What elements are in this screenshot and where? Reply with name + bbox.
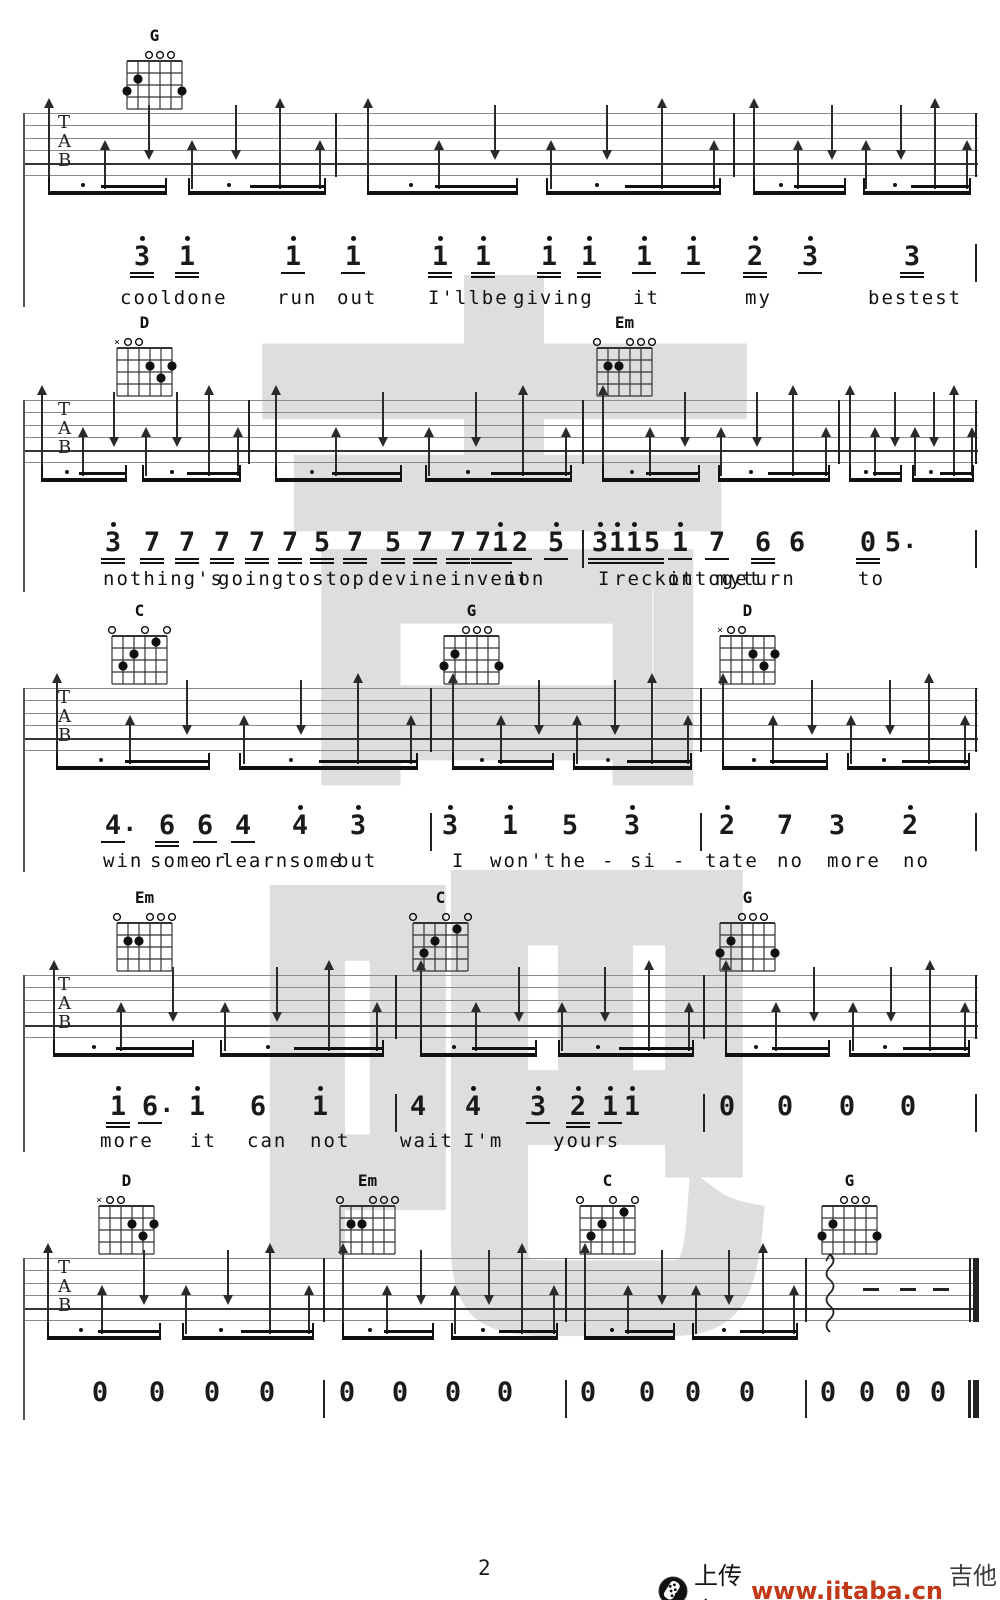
arrowhead-icon <box>296 725 306 735</box>
note-number: 6 <box>159 810 175 841</box>
note-number: 7 <box>450 527 466 558</box>
lyric-syllable: but <box>337 850 377 872</box>
melody-note: 0 <box>635 1372 659 1406</box>
beam-bar-partial <box>772 1047 829 1050</box>
melody-note: 0 <box>200 1372 224 1406</box>
svg-text:×: × <box>96 1195 102 1206</box>
strum-up-arrow-icon <box>269 1246 271 1334</box>
arrowhead-icon <box>848 1002 858 1012</box>
staff-line <box>23 175 978 176</box>
beam-bar-partial <box>770 760 828 763</box>
strum-up-arrow-icon <box>367 101 369 189</box>
beam-bar <box>53 1053 194 1057</box>
duration-underline <box>278 562 302 564</box>
duration-underline <box>130 276 154 278</box>
beam-bar-partial <box>627 760 692 763</box>
note-number: 0 <box>445 1377 461 1408</box>
note-number: 6 <box>250 1091 266 1122</box>
strum-up-arrow-icon <box>762 1246 764 1334</box>
rest-dash <box>900 1288 916 1291</box>
strum-up-arrow-icon <box>335 430 337 476</box>
melody-note: 1 <box>620 1086 644 1120</box>
melody-note: 6 <box>193 805 217 843</box>
arrowhead-icon <box>610 725 620 735</box>
melody-note: 1 <box>577 236 601 278</box>
svg-text:C: C <box>603 1174 613 1190</box>
augmentation-dot: · <box>123 817 137 841</box>
arrowhead-icon <box>514 1012 524 1022</box>
duration-underline <box>310 562 334 564</box>
melody-note: 6 <box>751 522 775 564</box>
melody-note: 1 <box>632 236 656 274</box>
duration-underline <box>310 558 334 560</box>
tab-letter: A <box>58 1278 71 1296</box>
system-left-barline <box>23 1258 25 1420</box>
strum-up-arrow-icon <box>687 718 689 764</box>
beam-bar <box>849 478 902 482</box>
strum-down-arrow-icon <box>661 1250 663 1302</box>
beam-dot <box>779 183 783 187</box>
note-number: 2 <box>902 810 918 841</box>
staff-line <box>23 125 978 126</box>
arrowhead-icon <box>546 140 556 150</box>
strum-up-arrow-icon <box>772 718 774 764</box>
beam-dot <box>610 1328 614 1332</box>
note-number: 5 <box>385 527 401 558</box>
melody-note: 2 <box>743 236 767 278</box>
strum-up-arrow-icon <box>953 388 955 476</box>
note-number: 3 <box>904 241 920 272</box>
note-number: 3 <box>829 810 845 841</box>
strum-up-arrow-icon <box>550 143 552 189</box>
beam-dot <box>929 470 933 474</box>
melody-note: 7 <box>773 805 797 839</box>
note-number: 4 <box>235 810 251 841</box>
strum-down-arrow-icon <box>382 392 384 444</box>
note-number: 1 <box>685 241 701 272</box>
arrowhead-icon <box>100 140 110 150</box>
beam-bar-partial <box>472 1047 536 1050</box>
melody-note: 0 <box>855 1372 879 1406</box>
measure-barline <box>395 975 397 1039</box>
strum-down-arrow-icon <box>813 967 815 1019</box>
strum-up-arrow-icon <box>243 718 245 764</box>
beam-dot <box>170 470 174 474</box>
beam-bar <box>912 478 974 482</box>
arrowhead-icon <box>484 1295 494 1305</box>
note-number: 0 <box>860 527 876 558</box>
note-number: 2 <box>512 527 528 558</box>
duration-underline <box>175 562 199 564</box>
beam-bar <box>47 1336 161 1340</box>
lyric-syllable: I'm <box>463 1130 503 1152</box>
beam-bar-partial <box>384 1330 435 1333</box>
strum-up-arrow-icon <box>775 1005 777 1051</box>
arrowhead-icon <box>168 1012 178 1022</box>
strum-down-arrow-icon <box>889 680 891 732</box>
arrowhead-icon <box>139 1295 149 1305</box>
lyric-syllable: some <box>150 850 204 872</box>
strum-down-arrow-icon <box>894 392 896 444</box>
arrowhead-icon <box>644 960 654 970</box>
beam-bar-partial <box>491 472 572 475</box>
beam-bar <box>420 1053 537 1057</box>
duration-underline <box>471 276 495 278</box>
strum-up-arrow-icon <box>454 1288 456 1334</box>
chord-diagram-d: D× <box>712 604 784 692</box>
arrowhead-icon <box>557 1002 567 1012</box>
arrowhead-icon <box>768 715 778 725</box>
beam-bar-partial <box>187 472 241 475</box>
note-number: 0 <box>839 1091 855 1122</box>
arrowhead-icon <box>97 1285 107 1295</box>
melody-note: 1 <box>185 1086 209 1120</box>
note-number: 7 <box>179 527 195 558</box>
melody-barline <box>430 813 432 851</box>
note-number: 0 <box>685 1377 701 1408</box>
svg-text:C: C <box>135 604 145 620</box>
arrowhead-icon <box>602 150 612 160</box>
duration-underline <box>381 558 405 560</box>
beam-bar <box>722 766 828 770</box>
arrowhead-icon <box>561 427 571 437</box>
chord-diagram-c: C <box>572 1174 644 1262</box>
tab-letter: B <box>58 1297 71 1315</box>
duration-underline <box>343 558 367 560</box>
tab-letter: T <box>58 1259 70 1277</box>
lyric-syllable: it <box>633 287 660 309</box>
chord-diagram-g: G <box>712 891 784 979</box>
arrowhead-icon <box>793 140 803 150</box>
melody-note: 4 <box>406 1086 430 1120</box>
note-number: 4 <box>105 810 121 841</box>
beam-dot <box>289 758 293 762</box>
strum-up-arrow-icon <box>386 1288 388 1334</box>
note-number: 4 <box>292 810 308 841</box>
duration-underline <box>130 272 154 274</box>
strum-up-arrow-icon <box>627 1288 629 1334</box>
arrowhead-icon <box>265 1243 275 1253</box>
melody-note: 0 <box>493 1372 517 1406</box>
site-name: 吉他吧 <box>949 1556 1000 1600</box>
duration-underline <box>705 558 729 560</box>
arrowhead-icon <box>204 385 214 395</box>
tab-letter: A <box>58 420 71 438</box>
beam-bar-partial <box>902 760 969 763</box>
duration-underline <box>413 558 437 560</box>
melody-note: 5 <box>544 522 568 560</box>
melody-note: 1 <box>668 522 692 560</box>
melody-note: 0 <box>926 1372 950 1406</box>
note-number: 1 <box>672 527 688 558</box>
beam-bar <box>753 191 846 195</box>
chord-diagram-em: Em <box>589 316 661 404</box>
upload-text: 上传自 <box>694 1556 745 1600</box>
measure-barline <box>430 688 432 752</box>
note-number: 0 <box>930 1377 946 1408</box>
staff-line <box>23 163 978 165</box>
arrowhead-icon <box>231 150 241 160</box>
melody-note: 0 <box>145 1372 169 1406</box>
arrowhead-icon <box>406 715 416 725</box>
note-number: 1 <box>179 241 195 272</box>
lyric-syllable: my <box>716 568 743 590</box>
note-number: 3 <box>134 241 150 272</box>
arrowhead-icon <box>929 437 939 447</box>
note-number: 1 <box>312 1091 328 1122</box>
beam-bar-partial <box>125 760 210 763</box>
strum-down-arrow-icon <box>488 1250 490 1302</box>
melody-note: 4 <box>231 805 255 843</box>
strum-down-arrow-icon <box>276 967 278 1019</box>
strum-up-arrow-icon <box>41 388 43 476</box>
melody-note: 0 <box>856 522 880 564</box>
note-number: 5 <box>885 527 901 558</box>
melody-barline <box>975 530 977 568</box>
chord-diagram-em: Em <box>109 891 181 979</box>
measure-barline <box>733 113 735 177</box>
beam-dot <box>630 470 634 474</box>
beam-bar <box>847 766 969 770</box>
duration-underline <box>245 562 269 564</box>
strum-down-arrow-icon <box>933 392 935 444</box>
beam-bar <box>188 191 325 195</box>
lyric-syllable: turn <box>742 568 796 590</box>
note-number: 7 <box>144 527 160 558</box>
staff-line <box>23 1012 978 1013</box>
melody-note: 0 <box>255 1372 279 1406</box>
melody-note: 0 <box>441 1372 465 1406</box>
melody-note: 3 <box>101 522 125 564</box>
chord-diagram-em: Em <box>332 1174 404 1262</box>
lyric-syllable: not <box>310 1130 350 1152</box>
beam-dot <box>893 183 897 187</box>
note-number: 1 <box>602 1091 618 1122</box>
lyric-syllable: learnsome <box>222 850 343 872</box>
arrowhead-icon <box>967 427 977 437</box>
melody-note: 0 <box>715 1086 739 1120</box>
beam-bar <box>849 1053 970 1057</box>
melody-note: 1 <box>681 236 705 274</box>
duration-underline <box>428 276 452 278</box>
measure-barline <box>700 688 702 752</box>
beam-bar-partial <box>241 1330 314 1333</box>
beam-bar <box>425 478 572 482</box>
strum-down-arrow-icon <box>494 105 496 157</box>
arrowhead-icon <box>691 1285 701 1295</box>
duration-underline <box>101 562 125 564</box>
melody-note: 3 <box>620 805 644 839</box>
staff-line <box>23 700 978 701</box>
note-number: 0 <box>497 1377 513 1408</box>
melody-note: 2 <box>566 1086 590 1128</box>
duration-underline <box>640 562 664 564</box>
arrowhead-icon <box>331 427 341 437</box>
arrowhead-icon <box>870 427 880 437</box>
strum-up-arrow-icon <box>328 963 330 1051</box>
strum-up-arrow-icon <box>713 143 715 189</box>
system-left-barline <box>23 400 25 592</box>
arrowhead-icon <box>752 437 762 447</box>
duration-underline <box>577 272 601 274</box>
arrowhead-icon <box>600 1012 610 1022</box>
strum-up-arrow-icon <box>475 1005 477 1051</box>
chord-diagram-g: G <box>436 604 508 692</box>
note-number: 6 <box>789 527 805 558</box>
note-number: 1 <box>636 241 652 272</box>
duration-underline <box>446 558 470 560</box>
strum-up-arrow-icon <box>275 388 277 476</box>
duration-underline <box>210 562 234 564</box>
arrowhead-icon <box>910 427 920 437</box>
strum-down-arrow-icon <box>420 1250 422 1302</box>
svg-text:Em: Em <box>358 1174 378 1190</box>
lyric-syllable: yours <box>553 1130 620 1152</box>
lyric-syllable: it <box>190 1130 217 1152</box>
chord-diagram-g: G <box>119 29 191 117</box>
arrowhead-icon <box>43 1243 53 1253</box>
arrowhead-icon <box>416 1295 426 1305</box>
staff-line <box>23 138 978 139</box>
strum-up-arrow-icon <box>651 676 653 764</box>
strum-down-arrow-icon <box>186 680 188 732</box>
beam-dot <box>99 758 103 762</box>
footer-brand: 上传自 www.jitaba.cn 吉他吧 <box>658 1556 1000 1600</box>
lyric-syllable: wait <box>400 1130 454 1152</box>
note-number: 0 <box>639 1377 655 1408</box>
note-number: 0 <box>820 1377 836 1408</box>
melody-note: 7 <box>446 522 470 564</box>
arrowhead-icon <box>52 673 62 683</box>
strum-up-arrow-icon <box>797 143 799 189</box>
duration-underline <box>640 558 664 560</box>
sheet-music-page: 吉 吧 TABG3111111111233cooldonerunoutI'llb… <box>0 0 1000 1600</box>
lyric-syllable: more <box>100 1130 154 1152</box>
tab-letter: B <box>58 727 71 745</box>
arrowhead-icon <box>572 715 582 725</box>
arrowhead-icon <box>949 385 959 395</box>
strum-up-arrow-icon <box>224 1005 226 1051</box>
arrowhead-icon <box>78 427 88 437</box>
strum-down-arrow-icon <box>604 967 606 1019</box>
note-number: 7 <box>347 527 363 558</box>
melody-barline <box>395 1094 397 1132</box>
arrowhead-icon <box>37 385 47 395</box>
final-barline-thick <box>973 1258 979 1322</box>
strum-up-arrow-icon <box>874 430 876 476</box>
strum-up-arrow-icon <box>521 1246 523 1334</box>
melody-barline <box>565 1380 567 1418</box>
note-number: 0 <box>392 1377 408 1408</box>
melody-note: 5· <box>881 522 905 556</box>
beam-dot <box>266 1045 270 1049</box>
note-number: 0 <box>204 1377 220 1408</box>
note-number: 1 <box>502 810 518 841</box>
duration-underline <box>175 272 199 274</box>
staff-line <box>23 450 978 452</box>
note-number: 3 <box>105 527 121 558</box>
note-number: 2 <box>570 1091 586 1122</box>
note-number: 0 <box>900 1091 916 1122</box>
site-url-link[interactable]: www.jitaba.cn <box>751 1577 943 1600</box>
lyric-syllable: tate <box>705 850 759 872</box>
measure-barline <box>703 975 705 1039</box>
staff-line <box>23 412 978 413</box>
arrowhead-icon <box>378 437 388 447</box>
note-number: 5 <box>548 527 564 558</box>
strum-down-arrow-icon <box>475 392 477 444</box>
arrowhead-icon <box>749 98 759 108</box>
duration-underline <box>428 272 452 274</box>
lyric-syllable: more <box>827 850 881 872</box>
arrowhead-icon <box>886 1012 896 1022</box>
beam-bar <box>725 1053 830 1057</box>
lyric-syllable: I'llbe <box>428 287 509 309</box>
arrowhead-icon <box>382 1285 392 1295</box>
beam-bar-partial <box>794 185 845 188</box>
strum-up-arrow-icon <box>688 1005 690 1051</box>
arrowhead-icon <box>821 427 831 437</box>
melody-note: 1 <box>598 1086 622 1124</box>
melody-note: 0 <box>891 1372 915 1406</box>
rest-dash <box>933 1288 949 1291</box>
beam-dot <box>65 470 69 474</box>
melody-note: 0 <box>681 1372 705 1406</box>
strum-up-arrow-icon <box>185 1288 187 1334</box>
melody-note: 0 <box>88 1372 112 1406</box>
melody-note: 3 <box>346 805 370 839</box>
note-number: 6 <box>755 527 771 558</box>
melody-note: 5 <box>310 522 334 564</box>
arrowhead-icon <box>807 725 817 735</box>
arrowhead-icon <box>930 98 940 108</box>
melody-note: 7 <box>245 522 269 564</box>
note-number: 0 <box>719 1091 735 1122</box>
melody-note: 7 <box>175 522 199 564</box>
note-number: 6 <box>142 1091 158 1122</box>
beam-bar <box>451 1336 557 1340</box>
tab-letter: B <box>58 152 71 170</box>
melody-note: 1 <box>308 1086 332 1120</box>
duration-underline <box>155 841 179 843</box>
beam-bar-partial <box>768 472 830 475</box>
melody-note: 5 <box>640 522 664 564</box>
lyric-syllable: run <box>277 287 317 309</box>
strum-up-arrow-icon <box>576 718 578 764</box>
duration-underline <box>566 1126 590 1128</box>
duration-underline <box>231 841 255 843</box>
beam-dot <box>864 470 868 474</box>
melody-note: 7 <box>343 522 367 564</box>
duration-underline <box>856 562 880 564</box>
duration-underline <box>381 562 405 564</box>
melody-note: 0 <box>335 1372 359 1406</box>
arrowhead-icon <box>141 427 151 437</box>
lyric-syllable: to <box>858 568 885 590</box>
strum-up-arrow-icon <box>793 1288 795 1334</box>
augmentation-dot: · <box>903 534 917 558</box>
arrowhead-icon <box>144 150 154 160</box>
note-number: 0 <box>895 1377 911 1408</box>
staff-line <box>23 1037 978 1038</box>
note-number: 0 <box>580 1377 596 1408</box>
arrowhead-icon <box>271 385 281 395</box>
strum-up-arrow-icon <box>753 101 755 189</box>
note-number: 7 <box>417 527 433 558</box>
melody-note: 0 <box>835 1086 859 1120</box>
beam-bar <box>48 191 167 195</box>
beam-bar <box>342 1336 434 1340</box>
